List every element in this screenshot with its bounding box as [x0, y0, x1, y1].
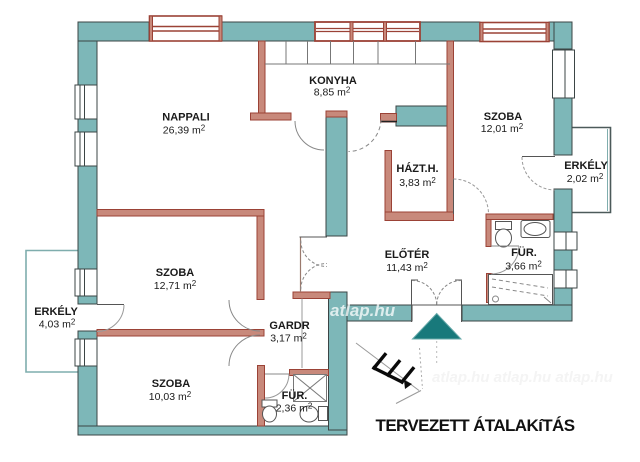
svg-text:atlap.hu: atlap.hu: [330, 301, 396, 320]
svg-text:12,01 m2: 12,01 m2: [481, 122, 524, 135]
svg-text:12,71 m2: 12,71 m2: [154, 279, 197, 292]
svg-text:4,03 m2: 4,03 m2: [39, 318, 76, 331]
svg-text:ERKÉLY: ERKÉLY: [564, 159, 608, 172]
svg-text:FÜR.: FÜR.: [282, 389, 308, 402]
svg-text:3,66 m2: 3,66 m2: [505, 260, 542, 273]
svg-text:ELŐTÉR: ELŐTÉR: [385, 248, 430, 261]
svg-text:GARDR: GARDR: [269, 320, 309, 332]
svg-text:3,17 m2: 3,17 m2: [270, 332, 307, 345]
svg-text:NAPPALI: NAPPALI: [162, 112, 209, 124]
svg-text:2,02 m2: 2,02 m2: [567, 172, 604, 185]
svg-text:SZOBA: SZOBA: [156, 267, 195, 279]
svg-text:11,43 m2: 11,43 m2: [386, 261, 428, 274]
svg-text:10,03 m2: 10,03 m2: [149, 390, 192, 403]
svg-text:8,85 m2: 8,85 m2: [314, 86, 351, 99]
svg-text:ERKÉLY: ERKÉLY: [34, 305, 78, 318]
svg-text:26,39 m2: 26,39 m2: [163, 124, 206, 137]
svg-text:FÜR.: FÜR.: [511, 246, 537, 259]
svg-text:HÁZT.H.: HÁZT.H.: [396, 162, 438, 175]
svg-text:TERVEZETT ÁTALAKíTÁS: TERVEZETT ÁTALAKíTÁS: [376, 416, 575, 435]
svg-text:SZOBA: SZOBA: [484, 111, 523, 123]
svg-text:3,83 m2: 3,83 m2: [399, 176, 436, 189]
svg-text:2,36 m2: 2,36 m2: [276, 402, 313, 415]
svg-text:SZOBA: SZOBA: [152, 378, 191, 390]
svg-text:atlap.hu atlap.hu atlap.hu: atlap.hu atlap.hu atlap.hu: [432, 369, 613, 386]
